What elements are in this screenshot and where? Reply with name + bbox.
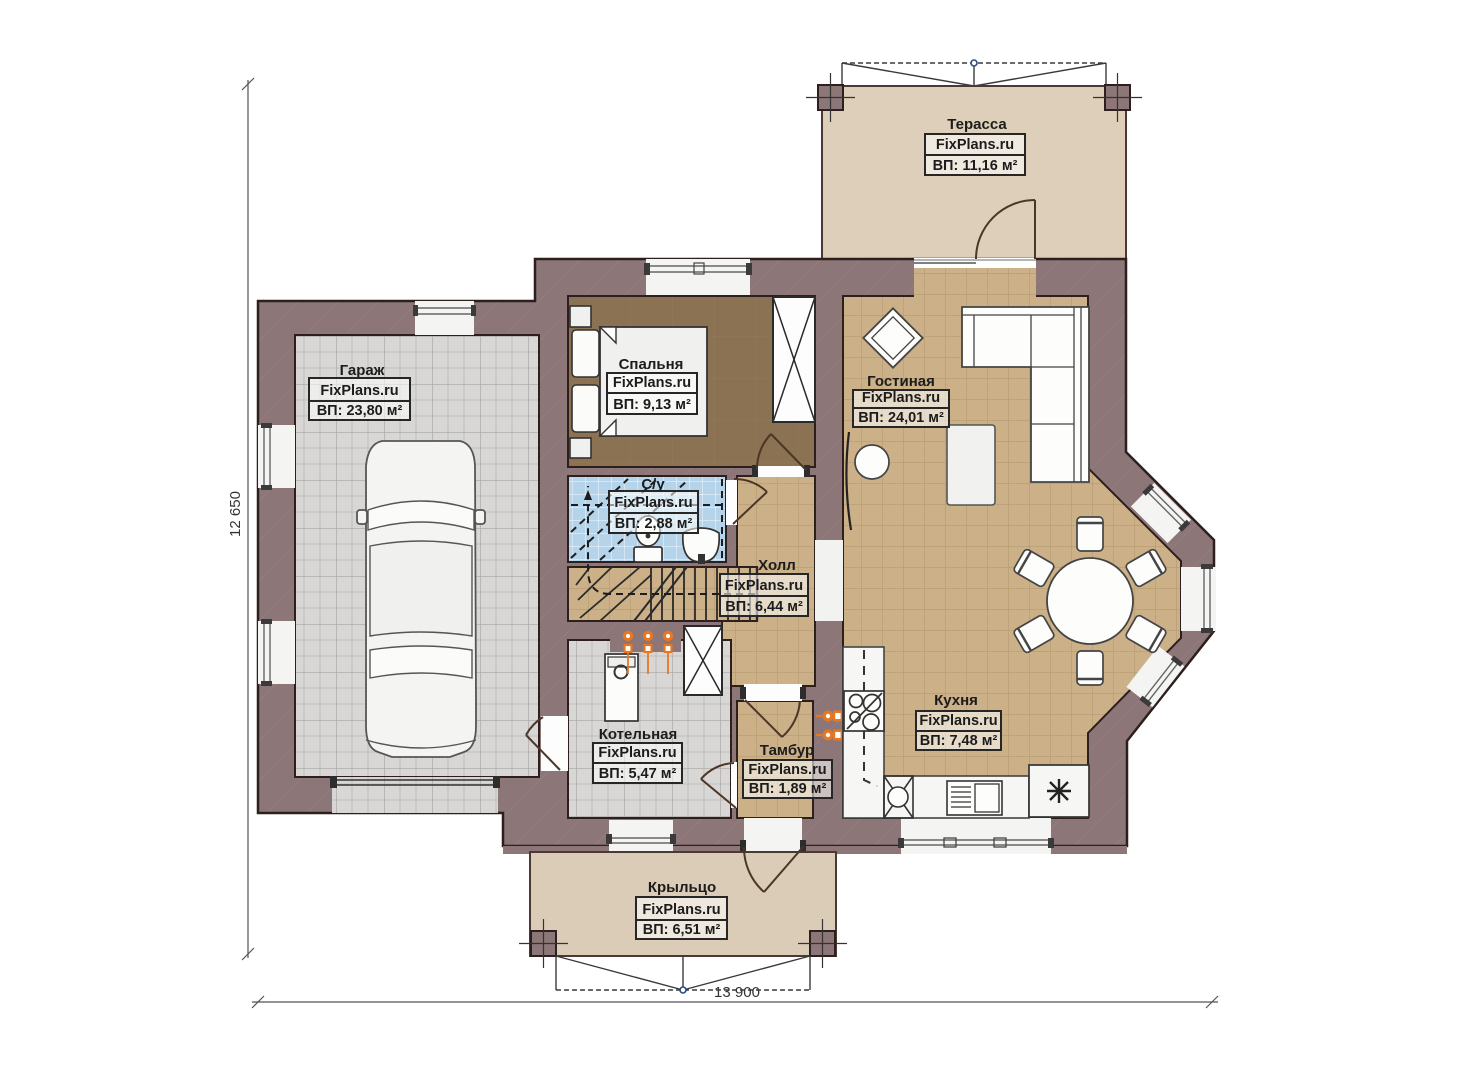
svg-text:FixPlans.ru: FixPlans.ru xyxy=(919,713,997,729)
svg-text:ВП: 6,44 м²: ВП: 6,44 м² xyxy=(725,599,803,615)
svg-text:FixPlans.ru: FixPlans.ru xyxy=(642,902,720,918)
svg-text:FixPlans.ru: FixPlans.ru xyxy=(936,137,1014,153)
svg-text:Гараж: Гараж xyxy=(340,362,385,379)
svg-text:Котельная: Котельная xyxy=(599,726,678,743)
svg-text:ВП: 5,47 м²: ВП: 5,47 м² xyxy=(599,766,677,782)
svg-text:13 900: 13 900 xyxy=(714,984,760,1001)
svg-text:ВП: 23,80 м²: ВП: 23,80 м² xyxy=(317,403,403,419)
svg-text:Крыльцо: Крыльцо xyxy=(648,879,716,896)
svg-text:FixPlans.ru: FixPlans.ru xyxy=(614,495,692,511)
svg-text:Тамбур: Тамбур xyxy=(760,742,814,759)
svg-text:Терасса: Терасса xyxy=(947,116,1007,133)
svg-text:FixPlans.ru: FixPlans.ru xyxy=(613,375,691,391)
svg-text:ВП: 7,48 м²: ВП: 7,48 м² xyxy=(920,733,998,749)
svg-text:ВП: 24,01 м²: ВП: 24,01 м² xyxy=(858,410,944,426)
svg-text:ВП: 1,89 м²: ВП: 1,89 м² xyxy=(749,781,827,797)
svg-text:ВП: 9,13 м²: ВП: 9,13 м² xyxy=(613,397,691,413)
svg-text:FixPlans.ru: FixPlans.ru xyxy=(748,762,826,778)
svg-text:Холл: Холл xyxy=(758,557,796,574)
svg-text:ВП: 6,51 м²: ВП: 6,51 м² xyxy=(643,922,721,938)
svg-text:FixPlans.ru: FixPlans.ru xyxy=(862,390,940,406)
svg-text:12 650: 12 650 xyxy=(227,491,244,537)
svg-text:ВП: 2,88 м²: ВП: 2,88 м² xyxy=(615,516,693,532)
svg-text:FixPlans.ru: FixPlans.ru xyxy=(598,745,676,761)
svg-text:Кухня: Кухня xyxy=(934,692,978,709)
svg-text:Гостиная: Гостиная xyxy=(867,373,935,390)
svg-text:Спальня: Спальня xyxy=(619,356,684,373)
svg-text:FixPlans.ru: FixPlans.ru xyxy=(320,383,398,399)
svg-text:FixPlans.ru: FixPlans.ru xyxy=(725,578,803,594)
svg-text:ВП: 11,16 м²: ВП: 11,16 м² xyxy=(933,158,1018,174)
